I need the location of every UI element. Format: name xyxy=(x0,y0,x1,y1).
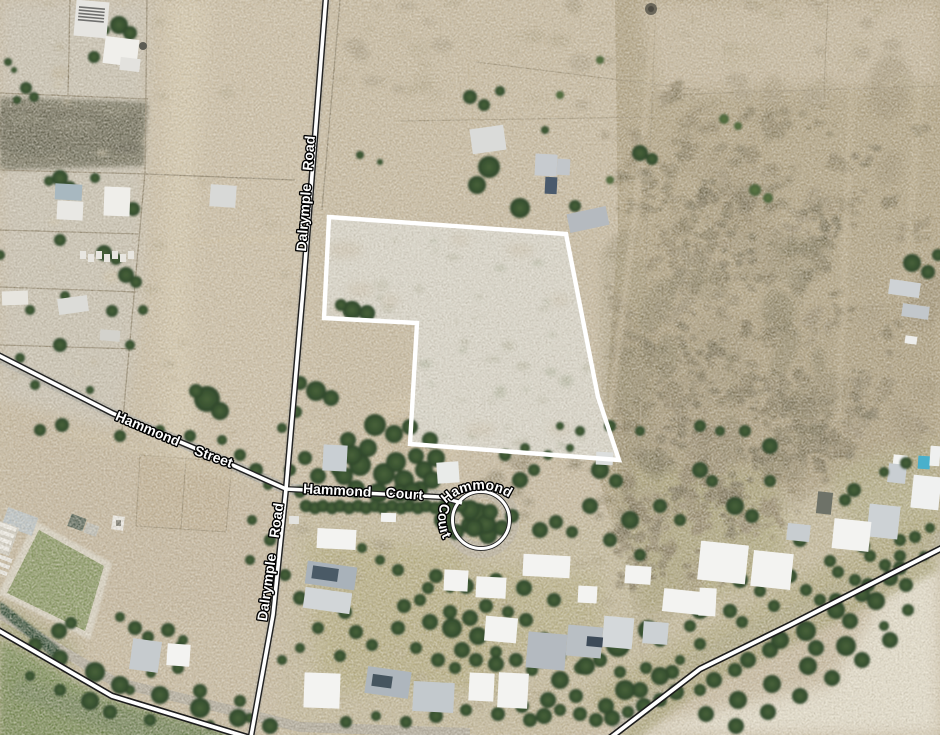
svg-text:Court: Court xyxy=(385,484,424,503)
svg-text:Road: Road xyxy=(299,135,318,171)
